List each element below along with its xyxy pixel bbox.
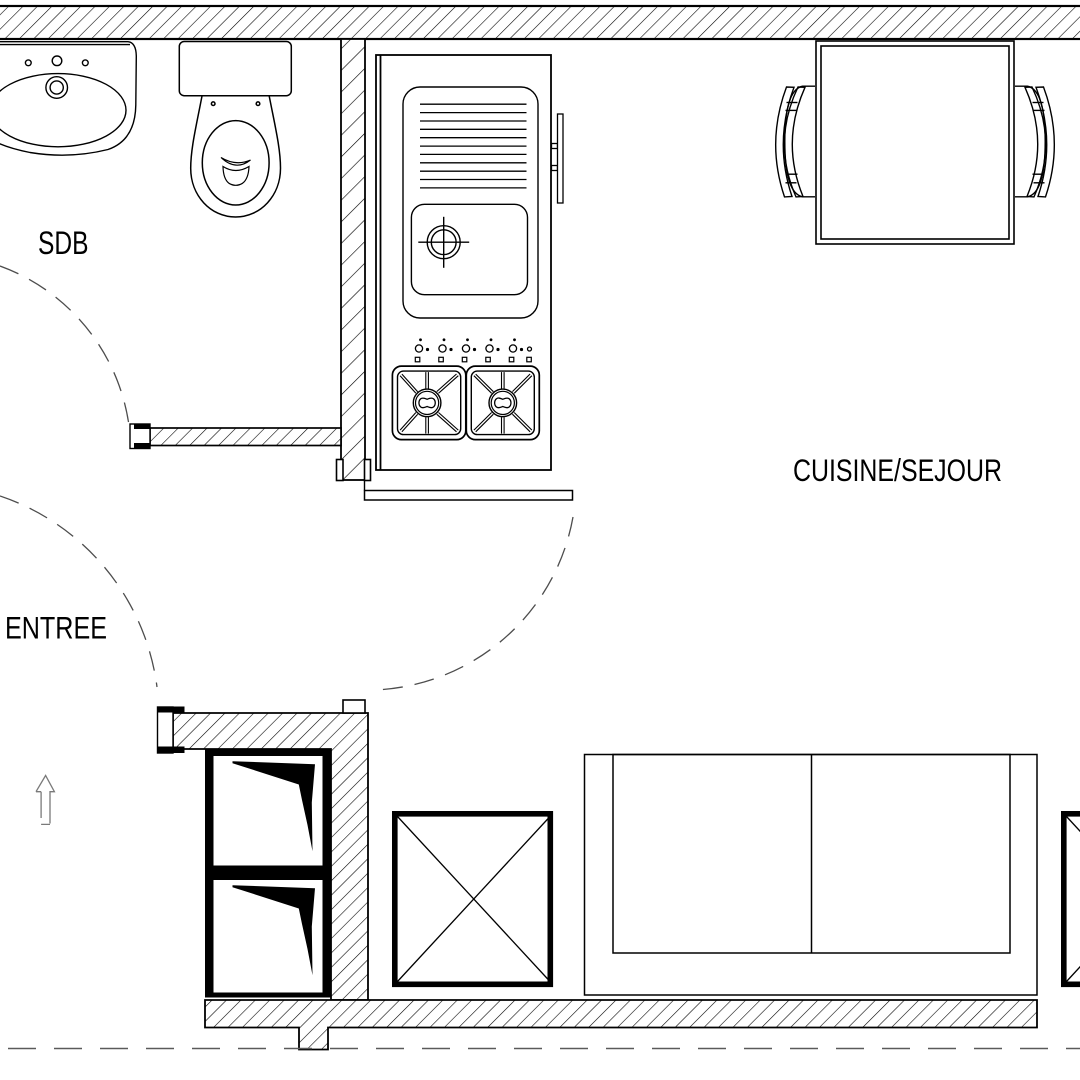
svg-text:SDB: SDB <box>38 225 89 261</box>
svg-text:CUISINE/SEJOUR: CUISINE/SEJOUR <box>793 452 1002 488</box>
svg-text:ENTREE: ENTREE <box>5 610 107 646</box>
